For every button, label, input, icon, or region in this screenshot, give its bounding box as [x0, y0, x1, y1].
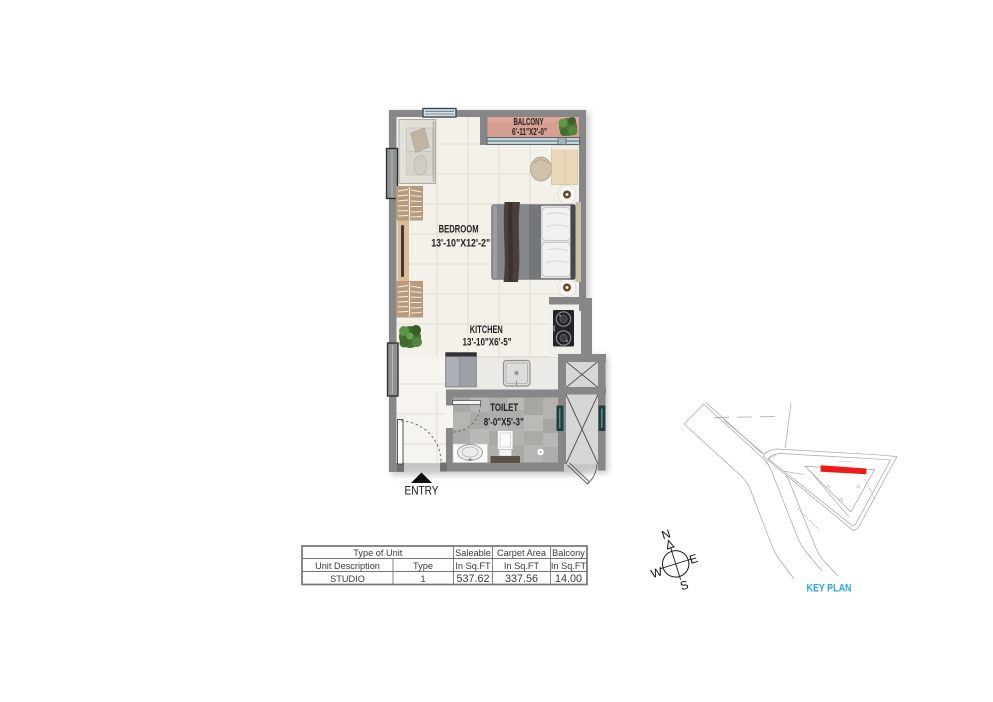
svg-text:537.62: 537.62 — [456, 573, 489, 585]
svg-text:Carpet Area: Carpet Area — [497, 548, 547, 558]
svg-text:Type: Type — [413, 561, 433, 571]
svg-text:In Sq.FT: In Sq.FT — [455, 561, 491, 571]
svg-text:6'-11"X2'-0": 6'-11"X2'-0" — [512, 127, 547, 138]
svg-text:ENTRY: ENTRY — [405, 484, 439, 498]
svg-text:13'-10"X6'-5": 13'-10"X6'-5" — [463, 337, 512, 349]
svg-text:Saleable: Saleable — [455, 548, 491, 558]
svg-text:In Sq.FT: In Sq.FT — [551, 561, 587, 571]
svg-text:8'-0"X5'-3": 8'-0"X5'-3" — [484, 417, 524, 429]
svg-text:KEY PLAN: KEY PLAN — [807, 583, 852, 595]
svg-text:TOILET: TOILET — [490, 402, 518, 414]
svg-text:Balcony: Balcony — [552, 548, 585, 558]
svg-text:STUDIO: STUDIO — [330, 574, 365, 584]
svg-text:337.56: 337.56 — [505, 573, 538, 585]
svg-text:Unit Description: Unit Description — [315, 561, 380, 571]
svg-text:14.00: 14.00 — [555, 573, 582, 585]
svg-text:In Sq.FT: In Sq.FT — [504, 561, 540, 571]
svg-text:BEDROOM: BEDROOM — [439, 223, 479, 235]
svg-text:1: 1 — [420, 574, 425, 584]
svg-text:KITCHEN: KITCHEN — [470, 324, 503, 336]
svg-text:Type of Unit: Type of Unit — [353, 548, 402, 558]
svg-text:13'-10"X12'-2": 13'-10"X12'-2" — [431, 238, 490, 250]
